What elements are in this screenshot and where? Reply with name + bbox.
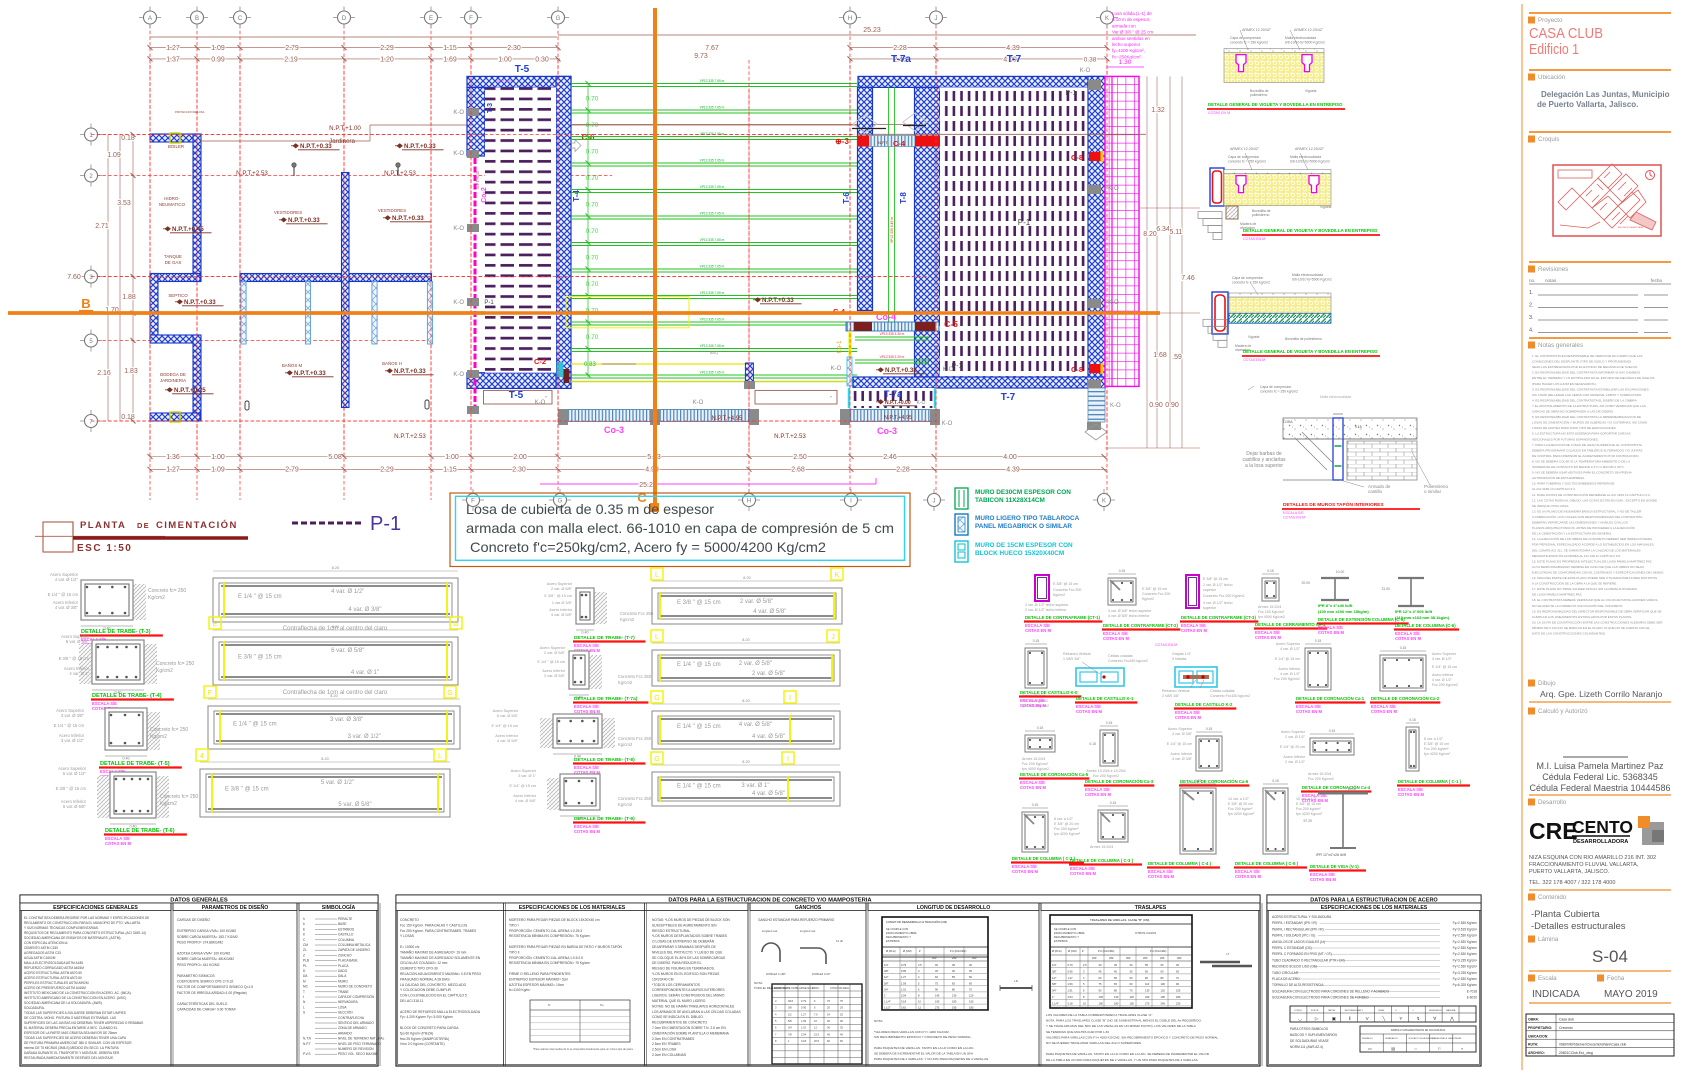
svg-text:DETALLE DE TRABE- (T-5): DETALLE DE TRABE- (T-5) (100, 761, 170, 767)
svg-text:E 1/4" @ 15 cm: E 1/4" @ 15 cm (1167, 742, 1192, 746)
svg-text:Acero Superior: Acero Superior (540, 646, 566, 650)
svg-text:E 3/8" @ 20 cm: E 3/8" @ 20 cm (1228, 802, 1253, 806)
svg-text:Capa de compresion: Capa de compresion (1228, 155, 1259, 159)
svg-text:E 1/4" @ 15 cm: E 1/4" @ 15 cm (491, 724, 518, 728)
svg-text:8.20: 8.20 (330, 694, 337, 698)
svg-text:1.09: 1.09 (211, 467, 225, 474)
svg-text:SIMBOLO SUPLEMENTARIOS DE SOLD: SIMBOLO SUPLEMENTARIOS DE SOLDADURAS (1391, 1029, 1446, 1032)
svg-text:N.P.T.+0.33: N.P.T.+0.33 (392, 215, 424, 222)
svg-text:CUYA RESPONSABILIDAD TERMINA E: CUYA RESPONSABILIDAD TERMINA EN CASO DE … (1532, 565, 1644, 569)
svg-text:Fcc 200 kg/cm²: Fcc 200 kg/cm² (1424, 747, 1449, 751)
svg-text:E 3/8" @ 15 cm: E 3/8" @ 15 cm (1142, 587, 1167, 591)
svg-text:2.54: 2.54 (801, 1032, 807, 1036)
svg-text:BISEL: BISEL (1379, 1010, 1386, 1012)
svg-text:N.P.T.+2.53: N.P.T.+2.53 (384, 170, 416, 177)
svg-text:CENTO: CENTO (1572, 817, 1633, 837)
svg-text:SE CUMPLE CON: SE CUMPLE CON (886, 927, 908, 931)
svg-text:2.30: 2.30 (507, 45, 521, 52)
svg-text:IPR 8"x 4"x40 lb/ft: IPR 8"x 4"x40 lb/ft (1318, 603, 1353, 608)
svg-text:1.15: 1.15 (443, 467, 457, 474)
svg-text:DATOS PARA LA ESTRUCTURACION D: DATOS PARA LA ESTRUCTURACION DE ACERO (1310, 898, 1438, 904)
svg-text:2 VAR 3/8": 2 VAR 3/8" (1162, 694, 1180, 698)
svg-text:4 var. Ø 5/8": 4 var. Ø 5/8" (515, 799, 537, 803)
svg-text:S: S (303, 1011, 305, 1015)
svg-text:ARMADO: ARMADO (338, 1031, 353, 1035)
svg-text:RANURA: RANURA (1446, 1009, 1456, 1012)
svg-text:Revisiones: Revisiones (1538, 266, 1568, 273)
svg-text:BLOCK HUECO 15X20X40CM: BLOCK HUECO 15X20X40CM (975, 550, 1064, 557)
svg-text:SEAN LAS ESTABLECIDAS POR EL E: SEAN LAS ESTABLECIDAS POR EL ESTUDIO DE … (1532, 365, 1638, 369)
svg-text:\\SERVER\Server\Crecento\Share: \\SERVER\Server\Crecento\Share\Casa club (1559, 1043, 1627, 1047)
svg-text:7.0cm EN CIMENTACIÓN SOBRE T.N: 7.0cm EN CIMENTACIÓN SOBRE T.N. 2.5 cm E… (652, 1025, 726, 1030)
svg-text:1/2": 1/2" (884, 975, 889, 979)
svg-text:LONGITUD REAL: LONGITUD REAL (830, 987, 850, 990)
svg-text:T-8: T-8 (899, 192, 908, 204)
svg-text:COTAS EN M: COTAS EN M (1012, 869, 1038, 874)
svg-text:ACERO ESTRUCTURAL Y SOLDADURA: ACERO ESTRUCTURAL Y SOLDADURA (1272, 915, 1332, 919)
svg-text:0.10 m de espesor,: 0.10 m de espesor, (1112, 17, 1150, 22)
svg-text:120: 120 (1130, 995, 1135, 999)
svg-text:O LOSAS DE ENTREPISO SE DEBERÁ: O LOSAS DE ENTREPISO SE DEBERÁN (652, 940, 715, 944)
svg-text:COTAS EN M: COTAS EN M (1235, 874, 1261, 879)
svg-text:GANCHO ESTANDAR PARA REFUERZO: GANCHO ESTANDAR PARA REFUERZO PRIMARIO (758, 918, 835, 922)
svg-text:245: 245 (1161, 1001, 1166, 1005)
svg-text:COTAS EN M: COTAS EN M (1371, 709, 1397, 714)
svg-text:PARA OTROS SIMBOLOS: PARA OTROS SIMBOLOS (1290, 1027, 1328, 1031)
svg-text:0.40: 0.40 (123, 757, 130, 761)
svg-text:Fcc 200 kg/cm²: Fcc 200 kg/cm² (1296, 807, 1321, 811)
svg-text:DETALLE DE CORONACIÓN Ca-4: DETALLE DE CORONACIÓN Ca-4 (1302, 785, 1371, 790)
svg-text:Malla electrosoldada: Malla electrosoldada (1292, 273, 1323, 277)
svg-text:0.15: 0.15 (1329, 729, 1336, 733)
svg-text:BISELADOS: BISELADOS (1429, 1009, 1442, 1012)
svg-text:COTAS EN M: COTAS EN M (1395, 636, 1421, 641)
svg-text:CARACTERÍSTICAS DEL SUELO: CARACTERÍSTICAS DEL SUELO (177, 1002, 228, 1006)
svg-text:14. LA EJECUCIÓN DE LAS OBR: 14. LA EJECUCIÓN DE LAS OBRAS DE CONCRET… (1532, 536, 1653, 541)
svg-text:Cédula Federal Maestria 104445: Cédula Federal Maestria 10444586 (1529, 783, 1670, 793)
svg-text:F'C (KG/CM2): F'C (KG/CM2) (1098, 949, 1114, 953)
svg-text:AUTORIZACIÓN DE ESTA EMPRESA.: AUTORIZACIÓN DE ESTA EMPRESA. (1532, 475, 1585, 480)
svg-text:TRASLAPES DE VARILLAS. CLASE ": TRASLAPES DE VARILLAS. CLASE "B" (CM) (1090, 918, 1149, 922)
svg-text:VP13 335 6.45 m: VP13 335 6.45 m (890, 217, 894, 243)
svg-text:Y COLOCACION DEBE CUMPLIR: Y COLOCACION DEBE CUMPLIR (400, 988, 451, 992)
svg-text:2.28: 2.28 (896, 467, 910, 474)
svg-text:E 3/8 " @ 15 cm: E 3/8 " @ 15 cm (677, 600, 721, 606)
svg-text:Kg/cm2: Kg/cm2 (618, 680, 633, 685)
svg-text:⚐: ⚐ (1438, 1046, 1442, 1051)
svg-text:1/4": 1/4" (884, 963, 889, 967)
svg-text:0.15: 0.15 (1089, 742, 1096, 746)
svg-text:E 3/8 " @ 15 cm: E 3/8 " @ 15 cm (225, 787, 269, 793)
svg-text:1/2": 1/2" (1052, 976, 1057, 980)
svg-text:0.15: 0.15 (1355, 425, 1362, 429)
svg-text:6 var. Ø 5/8": 6 var. Ø 5/8" (66, 639, 90, 644)
svg-text:4.39: 4.39 (1006, 45, 1020, 52)
svg-text:SECCIÓN: SECCIÓN (338, 1010, 353, 1015)
svg-text:6.34: 6.34 (1156, 226, 1170, 233)
svg-text:M.I. Luisa Pamela Martinez Paz: M.I. Luisa Pamela Martinez Paz (1536, 761, 1664, 771)
svg-text:DETALLE DE CERRAMIENTO Ce-1: DETALLE DE CERRAMIENTO Ce-1 (1255, 622, 1326, 627)
svg-text:DE CONTROL PARA DISMINUIR EL A: DE CONTROL PARA DISMINUIR EL AGRIETAMIEN… (1532, 454, 1639, 458)
svg-text:1.32: 1.32 (1151, 107, 1165, 114)
svg-text:0.15: 0.15 (1110, 801, 1117, 805)
svg-text:poliestireno: poliestireno (1252, 213, 1269, 217)
svg-text:PLB: PLB (303, 959, 309, 963)
svg-text:9.73: 9.73 (694, 53, 708, 60)
svg-text:VP13 335 7.65 m: VP13 335 7.65 m (700, 185, 725, 189)
svg-text:DETALLE DE TRABE- (T-4): DETALLE DE TRABE- (T-4) (92, 693, 162, 699)
svg-text:TODAS LAS SUPERFICIES A SOLDAR: TODAS LAS SUPERFICIES A SOLDARSE DEBERAN… (24, 1011, 126, 1015)
svg-text:E-7018: E-7018 (1467, 989, 1478, 993)
svg-text:Malla electrosoldada: Malla electrosoldada (1290, 155, 1321, 159)
svg-text:10. PARA TUBERÍAS Y DUCTOS: 10. PARA TUBERÍAS Y DUCTOS EMBEBIDOS REF… (1532, 482, 1615, 486)
svg-text:K-O: K-O (453, 300, 464, 306)
svg-text:NO SE PUEDEN TRASLAPAR VARILLA: NO SE PUEDEN TRASLAPAR VARILLAS DEL #12 … (1046, 1041, 1142, 1045)
svg-text:OTROS CASOS: OTROS CASOS (1135, 931, 1156, 935)
svg-text:ESPECIFICACIONES GENERALES: ESPECIFICACIONES GENERALES (53, 905, 138, 911)
svg-text:ESTRIBOS: ESTRIBOS (338, 927, 354, 931)
svg-text:0.70: 0.70 (586, 228, 599, 235)
svg-text:1 var Ø 3/8": 1 var Ø 3/8" (552, 601, 573, 605)
svg-text:1.59: 1.59 (801, 1019, 807, 1023)
svg-text:Concreto fc= 250: Concreto fc= 250 (148, 588, 186, 594)
svg-text:DEL COMITE ACI 311. SE GARANTI: DEL COMITE ACI 311. SE GARANTIZARÁ LA CA… (1532, 548, 1641, 552)
svg-text:105: 105 (1176, 989, 1181, 993)
svg-text:0.15: 0.15 (1409, 718, 1416, 722)
svg-text:Refuerzo Vertical: Refuerzo Vertical (1162, 689, 1190, 693)
svg-text:16. NINGUNA PARTE DE ESTE P: 16. NINGUNA PARTE DE ESTE PLANO PUEDE SE… (1532, 576, 1657, 580)
svg-text:Ø (PLG): Ø (PLG) (1052, 949, 1062, 953)
svg-text:DOBLEZ A 90°: DOBLEZ A 90° (812, 972, 831, 976)
svg-text:FRACCIONAMIENTO FLUVIAL VALLAR: FRACCIONAMIENTO FLUVIAL VALLARTA, (1529, 862, 1639, 868)
svg-text:N.P.T.+0.33: N.P.T.+0.33 (184, 299, 216, 306)
svg-text:G: G (556, 16, 561, 22)
svg-text:BODEGA DE: BODEGA DE (160, 372, 186, 377)
svg-text:E 1/4" @ 15 cm: E 1/4" @ 15 cm (1275, 657, 1300, 661)
svg-text:VALORES PARA VARILLAS CON FY=: VALORES PARA VARILLAS CON FY= 4200 KG/CM… (1046, 1035, 1219, 1039)
svg-text:SIN RECUBRIMIENTO EPOXICO Y CO: SIN RECUBRIMIENTO EPOXICO Y CONCRETO DE … (874, 1035, 972, 1039)
svg-text:COTAS EN M: COTAS EN M (1175, 715, 1201, 720)
svg-text:SOBRE CARGA MUERTA= 183.7 KG/M: SOBRE CARGA MUERTA= 183.7 KG/M2 (177, 935, 238, 939)
svg-text:3 var. Ø 5/8" lecho superior: 3 var. Ø 5/8" lecho superior (1108, 609, 1152, 613)
svg-text:PROPIETARIO:: PROPIETARIO: (1528, 1026, 1552, 1030)
svg-text:MC: MC (303, 985, 309, 989)
svg-text:COLUMNA: COLUMNA (338, 938, 355, 942)
svg-text:9/16: 9/16 (788, 999, 794, 1003)
svg-text:T-7: T-7 (1007, 54, 1022, 65)
svg-text:1.15: 1.15 (443, 45, 457, 52)
svg-text:Acero Inferior: Acero Inferior (513, 794, 537, 798)
svg-text:4 var. Ø 3/8": 4 var. Ø 3/8" (348, 607, 381, 613)
svg-text:PERFIL: PERFIL (1455, 1038, 1463, 1040)
svg-text:N.P.T: N.P.T (303, 1042, 311, 1046)
svg-text:G: G (654, 695, 659, 702)
svg-text:N.T.N: N.T.N (303, 1037, 312, 1041)
svg-text:3 hiladas: 3 hiladas (1172, 657, 1187, 661)
svg-text:TIPO II: TIPO II (509, 950, 520, 954)
svg-text:220: 220 (1145, 995, 1150, 999)
svg-text:Concreto f'c=250kg/cm2, Acero: Concreto f'c=250kg/cm2, Acero fy = 5000/… (470, 539, 826, 555)
svg-text:LONGITUD DE DESARROLLO: LONGITUD DE DESARROLLO (917, 905, 991, 911)
svg-text:DAÑADA DURANTE EL TRASPORTE Y: DAÑADA DURANTE EL TRASPORTE Y MONTAJE. D… (24, 1050, 120, 1055)
svg-text:2.30: 2.30 (512, 467, 526, 474)
svg-text:195: 195 (1161, 995, 1166, 999)
svg-text:1/4": 1/4" (1052, 963, 1057, 967)
svg-text:▭: ▭ (1368, 1046, 1372, 1051)
svg-text:CAPA DE COMPRESIÓN: CAPA DE COMPRESIÓN (338, 994, 375, 999)
svg-text:TRABE: TRABE (338, 990, 349, 994)
svg-text:2. ES RESPONSABILIDAD DEL: 2. ES RESPONSABILIDAD DEL CONTRATISTA IN… (1532, 371, 1640, 375)
svg-text:8. NO SE DEBERA COLAR SI: 8. NO SE DEBERA COLAR SI LA TEMPERATURA … (1532, 459, 1631, 463)
svg-text:ZUNCHO: ZUNCHO (338, 953, 352, 957)
svg-text:3 var. Ø 1": 3 var. Ø 1" (518, 774, 536, 778)
svg-text:110: 110 (1145, 982, 1150, 986)
svg-text:P.V.S: P.V.S (303, 1052, 310, 1056)
svg-text:E 1/4 " @ 15 cm: E 1/4 " @ 15 cm (48, 592, 79, 597)
svg-text:Concreto Fcc 250: Concreto Fcc 250 (618, 674, 652, 679)
svg-text:Fy=2.530 Kg/cm²: Fy=2.530 Kg/cm² (1453, 965, 1477, 969)
svg-text:JARDINERIA: JARDINERIA (160, 378, 186, 383)
svg-text:DETALLE DE CORONACIÓN Ca-6: DETALLE DE CORONACIÓN Ca-6 (1180, 779, 1249, 784)
svg-text:Armex 15.20/4 e 15.25/4: Armex 15.20/4 e 15.25/4 (1086, 769, 1125, 773)
svg-text:250: 250 (1109, 956, 1114, 960)
svg-text:4 var. Ø 1/2": 4 var. Ø 1/2" (1432, 678, 1453, 682)
svg-text:E: E (213, 621, 218, 628)
svg-text:Escala: Escala (1538, 975, 1557, 982)
svg-text:57.20: 57.20 (1304, 819, 1313, 823)
svg-text:DETALLE DE CORONACIÓN Ca-5: DETALLE DE CORONACIÓN Ca-5 (1020, 772, 1089, 777)
svg-text:ADICIONALES POR FUTURAS EXPANS: ADICIONALES POR FUTURAS EXPANSIONES. (1532, 437, 1599, 441)
svg-text:Kg/cm2: Kg/cm2 (148, 595, 165, 601)
svg-text:5.11: 5.11 (1169, 229, 1182, 236)
svg-text:LA CALIDAD DEL CONCRETO. MEZCL: LA CALIDAD DEL CONCRETO. MEZCLADO (400, 983, 467, 987)
svg-text:7. PARA LA EJECICION DE L: 7. PARA LA EJECICION DE LOSAS DE GRAN SU… (1532, 443, 1643, 447)
svg-text:3/4": 3/4" (884, 987, 889, 991)
svg-text:0.70: 0.70 (586, 202, 599, 209)
svg-text:O FABRICACIÓN. LOS CUALES SON: O FABRICACIÓN. LOS CUALES SON RESPONSABI… (1532, 514, 1643, 519)
svg-text:Casa club: Casa club (1559, 1018, 1574, 1022)
svg-text:250: 250 (1160, 956, 1165, 960)
svg-text:1.: 1. (1529, 290, 1534, 296)
svg-text:ENTRE EL TERRENO Y LO ESTIPULA: ENTRE EL TERRENO Y LO ESTIPULADO EN EL E… (1532, 376, 1655, 380)
svg-text:E 1/4 " @ 15 cm: E 1/4 " @ 15 cm (677, 724, 721, 730)
svg-text:Armex 15.20/4: Armex 15.20/4 (1090, 845, 1113, 849)
svg-text:PARAMETRO SISMICOS: PARAMETRO SISMICOS (177, 974, 215, 978)
svg-text:C-2: C-2 (534, 357, 546, 366)
svg-text:P-1: P-1 (370, 513, 401, 535)
svg-text:5. ES RESPONSABILIDAD DEL CONT: 5. ES RESPONSABILIDAD DEL CONTRATISTA LA… (1532, 415, 1641, 419)
svg-text:DETALLE DE CORONACIÓN Ca-1: DETALLE DE CORONACIÓN Ca-1 (1296, 696, 1365, 701)
svg-text:CORDO: CORDO (1294, 1010, 1302, 1012)
svg-text:T: T (303, 990, 305, 994)
svg-text:PERFIL I RECTANGULAR (IPR / IR: PERFIL I RECTANGULAR (IPR / IR) (1272, 927, 1324, 931)
svg-text:DEBERA PROGRAMAR COLADOS EN TA: DEBERA PROGRAMAR COLADOS EN TABLEROS ALT… (1532, 448, 1642, 452)
svg-text:J: J (935, 16, 938, 22)
svg-text:6. LA ESTRUCTURA NO ESTA: 6. LA ESTRUCTURA NO ESTA DISEÑADA PARA S… (1532, 431, 1631, 436)
svg-text:4 var. Ø 1/2": 4 var. Ø 1/2" (1280, 647, 1301, 651)
svg-text:N.P.T.+0.33: N.P.T.+0.33 (394, 368, 426, 375)
svg-text:VP13 335 7.65 m: VP13 335 7.65 m (700, 212, 725, 216)
svg-text:Acero Inferior: Acero Inferior (1278, 667, 1300, 671)
svg-text:K-O: K-O (535, 400, 546, 406)
svg-text:PLACA BASE: PLACA BASE (338, 959, 358, 963)
svg-text:AGUA ASTM C1602M: AGUA ASTM C1602M (24, 956, 56, 960)
svg-text:2.0cm EN COLUMNAS: 2.0cm EN COLUMNAS (652, 1053, 687, 1057)
svg-text:Fy=3.235 Kg/cm²: Fy=3.235 Kg/cm² (1453, 971, 1477, 975)
svg-text:0.15: 0.15 (1267, 569, 1274, 573)
svg-text:DE SOLDADURAS VEASE: DE SOLDADURAS VEASE (1290, 1039, 1329, 1043)
svg-text:REFUERZO CORRUGADO ASTM A615M: REFUERZO CORRUGADO ASTM A615M (24, 966, 84, 970)
svg-text:3/4: 3/4 (788, 1026, 792, 1030)
svg-text:K-O: K-O (453, 226, 464, 232)
svg-text:(100 mm x100 mm 15kg/m): (100 mm x100 mm 15kg/m) (1318, 609, 1369, 614)
svg-text:1.1/4": 1.1/4" (884, 1000, 891, 1004)
svg-text:L: L (655, 572, 659, 579)
svg-text:Ubicación: Ubicación (1538, 74, 1566, 81)
svg-text:MORTERO PARA PEGAR PIEZAS DE B: MORTERO PARA PEGAR PIEZAS DE BLOCK 15X20… (509, 918, 600, 922)
svg-text:K-O: K-O (1108, 186, 1119, 192)
svg-text:NUMERO DE REVISION: NUMERO DE REVISION (338, 1047, 374, 1051)
svg-text:COTAS EN M: COTAS EN M (1255, 635, 1281, 640)
svg-text:4 var. Ø 5/8" lecho inferior: 4 var. Ø 5/8" lecho inferior (1108, 614, 1150, 618)
svg-text:PROPORCIÓN: CEMENTO.CAL.ARENA: PROPORCIÓN: CEMENTO.CAL.ARENA 1:0.25:3 (509, 928, 582, 933)
svg-text:6/6-10/10 fy=5000 Kg/cm2: 6/6-10/10 fy=5000 Kg/cm2 (1290, 160, 1330, 164)
svg-text:N.P.T.+2.53: N.P.T.+2.53 (774, 433, 806, 440)
svg-text:N.P.T.+0.33: N.P.T.+0.33 (294, 370, 326, 377)
svg-text:4 var. Ø 5/8": 4 var. Ø 5/8" (752, 734, 785, 740)
svg-text:DETALLE DE TRABE- (T-6): DETALLE DE TRABE- (T-6) (105, 828, 175, 834)
svg-text:5.08: 5.08 (328, 454, 342, 461)
svg-text:PERFIL C FORMADO EN FRIO (MT /: PERFIL C FORMADO EN FRIO (MT / CF) (1272, 952, 1332, 956)
svg-text:N.P.T.+2.53: N.P.T.+2.53 (236, 170, 268, 177)
svg-text:ENTREPISO ESPESOR MÁ: ENTREPISO ESPESOR MÁXIMO= 5cm (509, 977, 569, 981)
svg-text:ZONA DE ARMADO: ZONA DE ARMADO (338, 1026, 367, 1030)
svg-text:270: 270 (1145, 1001, 1150, 1005)
svg-text:-Planta Cubierta: -Planta Cubierta (1531, 909, 1600, 920)
svg-text:LOS VALORES DE LA TABLA CORRES: LOS VALORES DE LA TABLA CORRESPONDEN A T… (1046, 1013, 1152, 1017)
svg-text:1.1/2": 1.1/2" (884, 1006, 891, 1010)
svg-text:DETALLE DE COLUMNA (C-6): DETALLE DE COLUMNA (C-6) (1395, 623, 1456, 628)
svg-text:ESPECIFICACIONES DE LOS MATERI: ESPECIFICACIONES DE LOS MATERIALES (1321, 905, 1428, 911)
svg-text:130: 130 (952, 994, 957, 998)
svg-text:T-7a: T-7a (884, 389, 903, 399)
svg-text:ZL: ZL (303, 948, 307, 952)
svg-text:F: F (469, 16, 473, 22)
svg-text:Concreto fc= 250: Concreto fc= 250 (156, 661, 194, 667)
svg-text:Fcc 250 Kg/cm². PARA CONTRATRA: Fcc 250 Kg/cm². PARA CONTRATRABES. TRABE… (400, 929, 477, 933)
svg-text:DE COSTRA. MOHO. PINTURA O MAT: DE COSTRA. MOHO. PINTURA O MATERIAS EXTR… (24, 1015, 116, 1020)
svg-text:2.28: 2.28 (893, 45, 907, 52)
svg-text:COLUMNA METALICA: COLUMNA METALICA (338, 943, 371, 947)
svg-text:3 var. Ø 1/2": 3 var. Ø 1/2" (61, 738, 85, 743)
svg-text:Co-3: Co-3 (604, 425, 624, 435)
svg-text:1.59: 1.59 (901, 981, 907, 985)
svg-text:20. LA JUNTA DE CONSTRUCCIÓN E: 20. LA JUNTA DE CONSTRUCCIÓN ENTRE LAS C… (1532, 619, 1663, 624)
svg-text:RECUBRIMIENTOS DE CONCRETO: RECUBRIMIENTOS DE CONCRETO (652, 1021, 707, 1025)
svg-text:SENTIDO DEL ARMADO: SENTIDO DEL ARMADO (338, 1021, 374, 1025)
svg-text:TIPO I: TIPO I (509, 923, 519, 927)
svg-text:E 1/4" @ 15 cm: E 1/4" @ 15 cm (509, 784, 536, 788)
svg-text:130: 130 (1114, 995, 1119, 999)
svg-text:145: 145 (1099, 995, 1104, 999)
svg-text:1.37: 1.37 (166, 56, 180, 63)
svg-text:CUMPLAN LOS LINEAMIENTOS ESTIP: CUMPLAN LOS LINEAMIENTOS ESTIPULADOS POR… (1532, 615, 1632, 619)
svg-text:VESTIDORES: VESTIDORES (274, 210, 302, 215)
svg-text:CASA CLUB: CASA CLUB (1529, 26, 1603, 42)
svg-text:DETALLE DE TRABE- (T-8): DETALLE DE TRABE- (T-8) (574, 757, 635, 763)
svg-text:8.20: 8.20 (1143, 231, 1157, 238)
svg-text:N.P.T.+0.25: N.P.T.+0.25 (174, 387, 206, 394)
svg-text:superior: superior (1203, 606, 1217, 610)
svg-text:4 var. Ø 1/2": 4 var. Ø 1/2" (331, 589, 364, 595)
svg-text:0.90: 0.90 (1165, 402, 1179, 409)
svg-text:DEBERAN VERIFICARSE LAS DIMENS: DEBERAN VERIFICARSE LAS DIMENSIONES Y NI… (1532, 521, 1628, 525)
svg-text:Grapas 1/4": Grapas 1/4" (1172, 652, 1192, 656)
svg-text:CRE: CRE (1529, 818, 1578, 844)
svg-text:Acero Superior: Acero Superior (1432, 652, 1457, 656)
svg-text:fyn 4000 Kg/cm2: fyn 4000 Kg/cm2 (1258, 615, 1285, 619)
svg-text:2.71: 2.71 (95, 223, 109, 230)
svg-text:SOLDADURA.: SOLDADURA. (24, 1006, 45, 1010)
svg-text:S-04: S-04 (1592, 947, 1628, 966)
svg-text:Concreto Fcc150 kg/cm2: Concreto Fcc150 kg/cm2 (1210, 694, 1250, 698)
svg-text:MALLA ELECTROSOLDADA ASTM A185: MALLA ELECTROSOLDADA ASTM A185 (24, 961, 83, 965)
svg-text:COTAS EN M: COTAS EN M (1085, 792, 1111, 797)
svg-text:Fy=3.515 Kg/cm²: Fy=3.515 Kg/cm² (1453, 927, 1477, 931)
svg-text:BASE: BASE (338, 922, 347, 926)
svg-text:VP13 335 7.65 m: VP13 335 7.65 m (700, 344, 725, 348)
svg-text:N.P.T.+0.33: N.P.T.+0.33 (404, 143, 436, 150)
svg-text:Y SE TRASLAPA MAS DEL 50% DE L: Y SE TRASLAPA MAS DEL 50% DE LAS VARILLA… (1046, 1024, 1197, 1028)
svg-text:NOTAS: *LOS MUROS DE PIEZAS DE: NOTAS: *LOS MUROS DE PIEZAS DE BLOCK SON (652, 918, 730, 922)
svg-text:120: 120 (969, 994, 974, 998)
svg-text:6 var. Ø 5/8": 6 var. Ø 5/8" (331, 648, 364, 654)
svg-text:2 var. Ø 1/2" lecho superior: 2 var. Ø 1/2" lecho superior (1025, 603, 1069, 607)
svg-text:0.70: 0.70 (586, 149, 599, 156)
svg-text:Y EL APUNTALAMIENTO DE LA ESTR: Y EL APUNTALAMIENTO DE LA ESTRUCTURA. AS… (1532, 404, 1646, 408)
svg-text:NIVEL DE PISO TERMINADO: NIVEL DE PISO TERMINADO (338, 1042, 381, 1046)
svg-text:11. PARA JUNTAS DE CONSTRUC: 11. PARA JUNTAS DE CONSTRUCCIÓN REFIERAS… (1532, 492, 1651, 497)
svg-text:5 var. Ø 5/8": 5 var. Ø 5/8" (63, 804, 87, 809)
svg-text:DE: DE (137, 521, 150, 530)
svg-text:CEMENTO TIPO CPO-30: CEMENTO TIPO CPO-30 (400, 967, 438, 971)
svg-text:SE INDIQUE OTRA COSA.: SE INDIQUE OTRA COSA. (1532, 504, 1569, 508)
svg-text:Edificio 1: Edificio 1 (1529, 42, 1579, 58)
svg-text:▷: ▷ (1315, 1016, 1319, 1021)
svg-text:GANCHOS: GANCHOS (795, 905, 822, 911)
svg-text:EL MATERIAL DEBERA PRECALENTAR: EL MATERIAL DEBERA PRECALENTARSE A 56°C.… (24, 1026, 118, 1030)
svg-text:2.5cm EN TRABES: 2.5cm EN TRABES (652, 1042, 681, 1046)
svg-text:2 var. Ø 5/8": 2 var. Ø 5/8" (752, 671, 785, 677)
svg-text:E 3/8 " @ 15 cm: E 3/8 " @ 15 cm (238, 655, 282, 661)
svg-text:T-3: T-3 (487, 103, 494, 113)
svg-text:Concreto fc= 250: Concreto fc= 250 (160, 794, 198, 800)
svg-text:Concreto Fcc 200: Concreto Fcc 200 (1053, 588, 1081, 592)
svg-text:E 3/8" @ 15 cm: E 3/8" @ 15 cm (1424, 742, 1449, 746)
svg-text:MEDIANTE ENSAYOS ACORDES AL AC: MEDIANTE ENSAYOS ACORDES AL ACI 318.11 C… (1532, 554, 1621, 558)
svg-text:5 var. Ø 1/2": 5 var. Ø 1/2" (63, 771, 87, 776)
svg-text:LOSAS DE CIMENTACIÓN Y MUROS D: LOSAS DE CIMENTACIÓN Y MUROS DE ALBERCAS… (1532, 420, 1648, 425)
svg-text:1.68: 1.68 (1153, 352, 1167, 359)
svg-text:Acero Inferior: Acero Inferior (495, 734, 519, 738)
svg-text:N.P.T.+2.53: N.P.T.+2.53 (394, 433, 426, 440)
svg-text:220: 220 (1176, 1001, 1181, 1005)
svg-text:K-O: K-O (917, 400, 926, 406)
svg-text:AZOTEA CARGA VIVA= 100 K: AZOTEA CARGA VIVA= 100 KG/M2 (177, 952, 230, 956)
svg-text:4 var. Ø 3/8": 4 var. Ø 3/8" (1172, 757, 1193, 761)
svg-text:*LOS MUROS EN EL EDIFICIO SON: *LOS MUROS EN EL EDIFICIO SON PIEZAS (652, 972, 720, 976)
svg-text:Crecento: Crecento (1559, 1026, 1573, 1030)
